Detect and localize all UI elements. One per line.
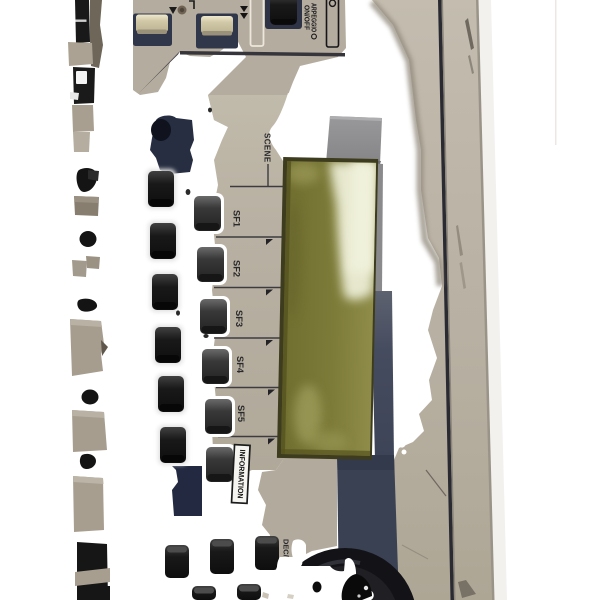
svg-text:SF4: SF4 xyxy=(235,356,245,374)
svg-text:SF3: SF3 xyxy=(234,310,244,327)
svg-text:ON/OFF: ON/OFF xyxy=(303,5,311,31)
svg-text:SCENE: SCENE xyxy=(263,133,272,163)
svg-text:SF1: SF1 xyxy=(232,210,242,227)
svg-text:SF2: SF2 xyxy=(232,260,242,277)
svg-text:SF5: SF5 xyxy=(236,405,246,422)
